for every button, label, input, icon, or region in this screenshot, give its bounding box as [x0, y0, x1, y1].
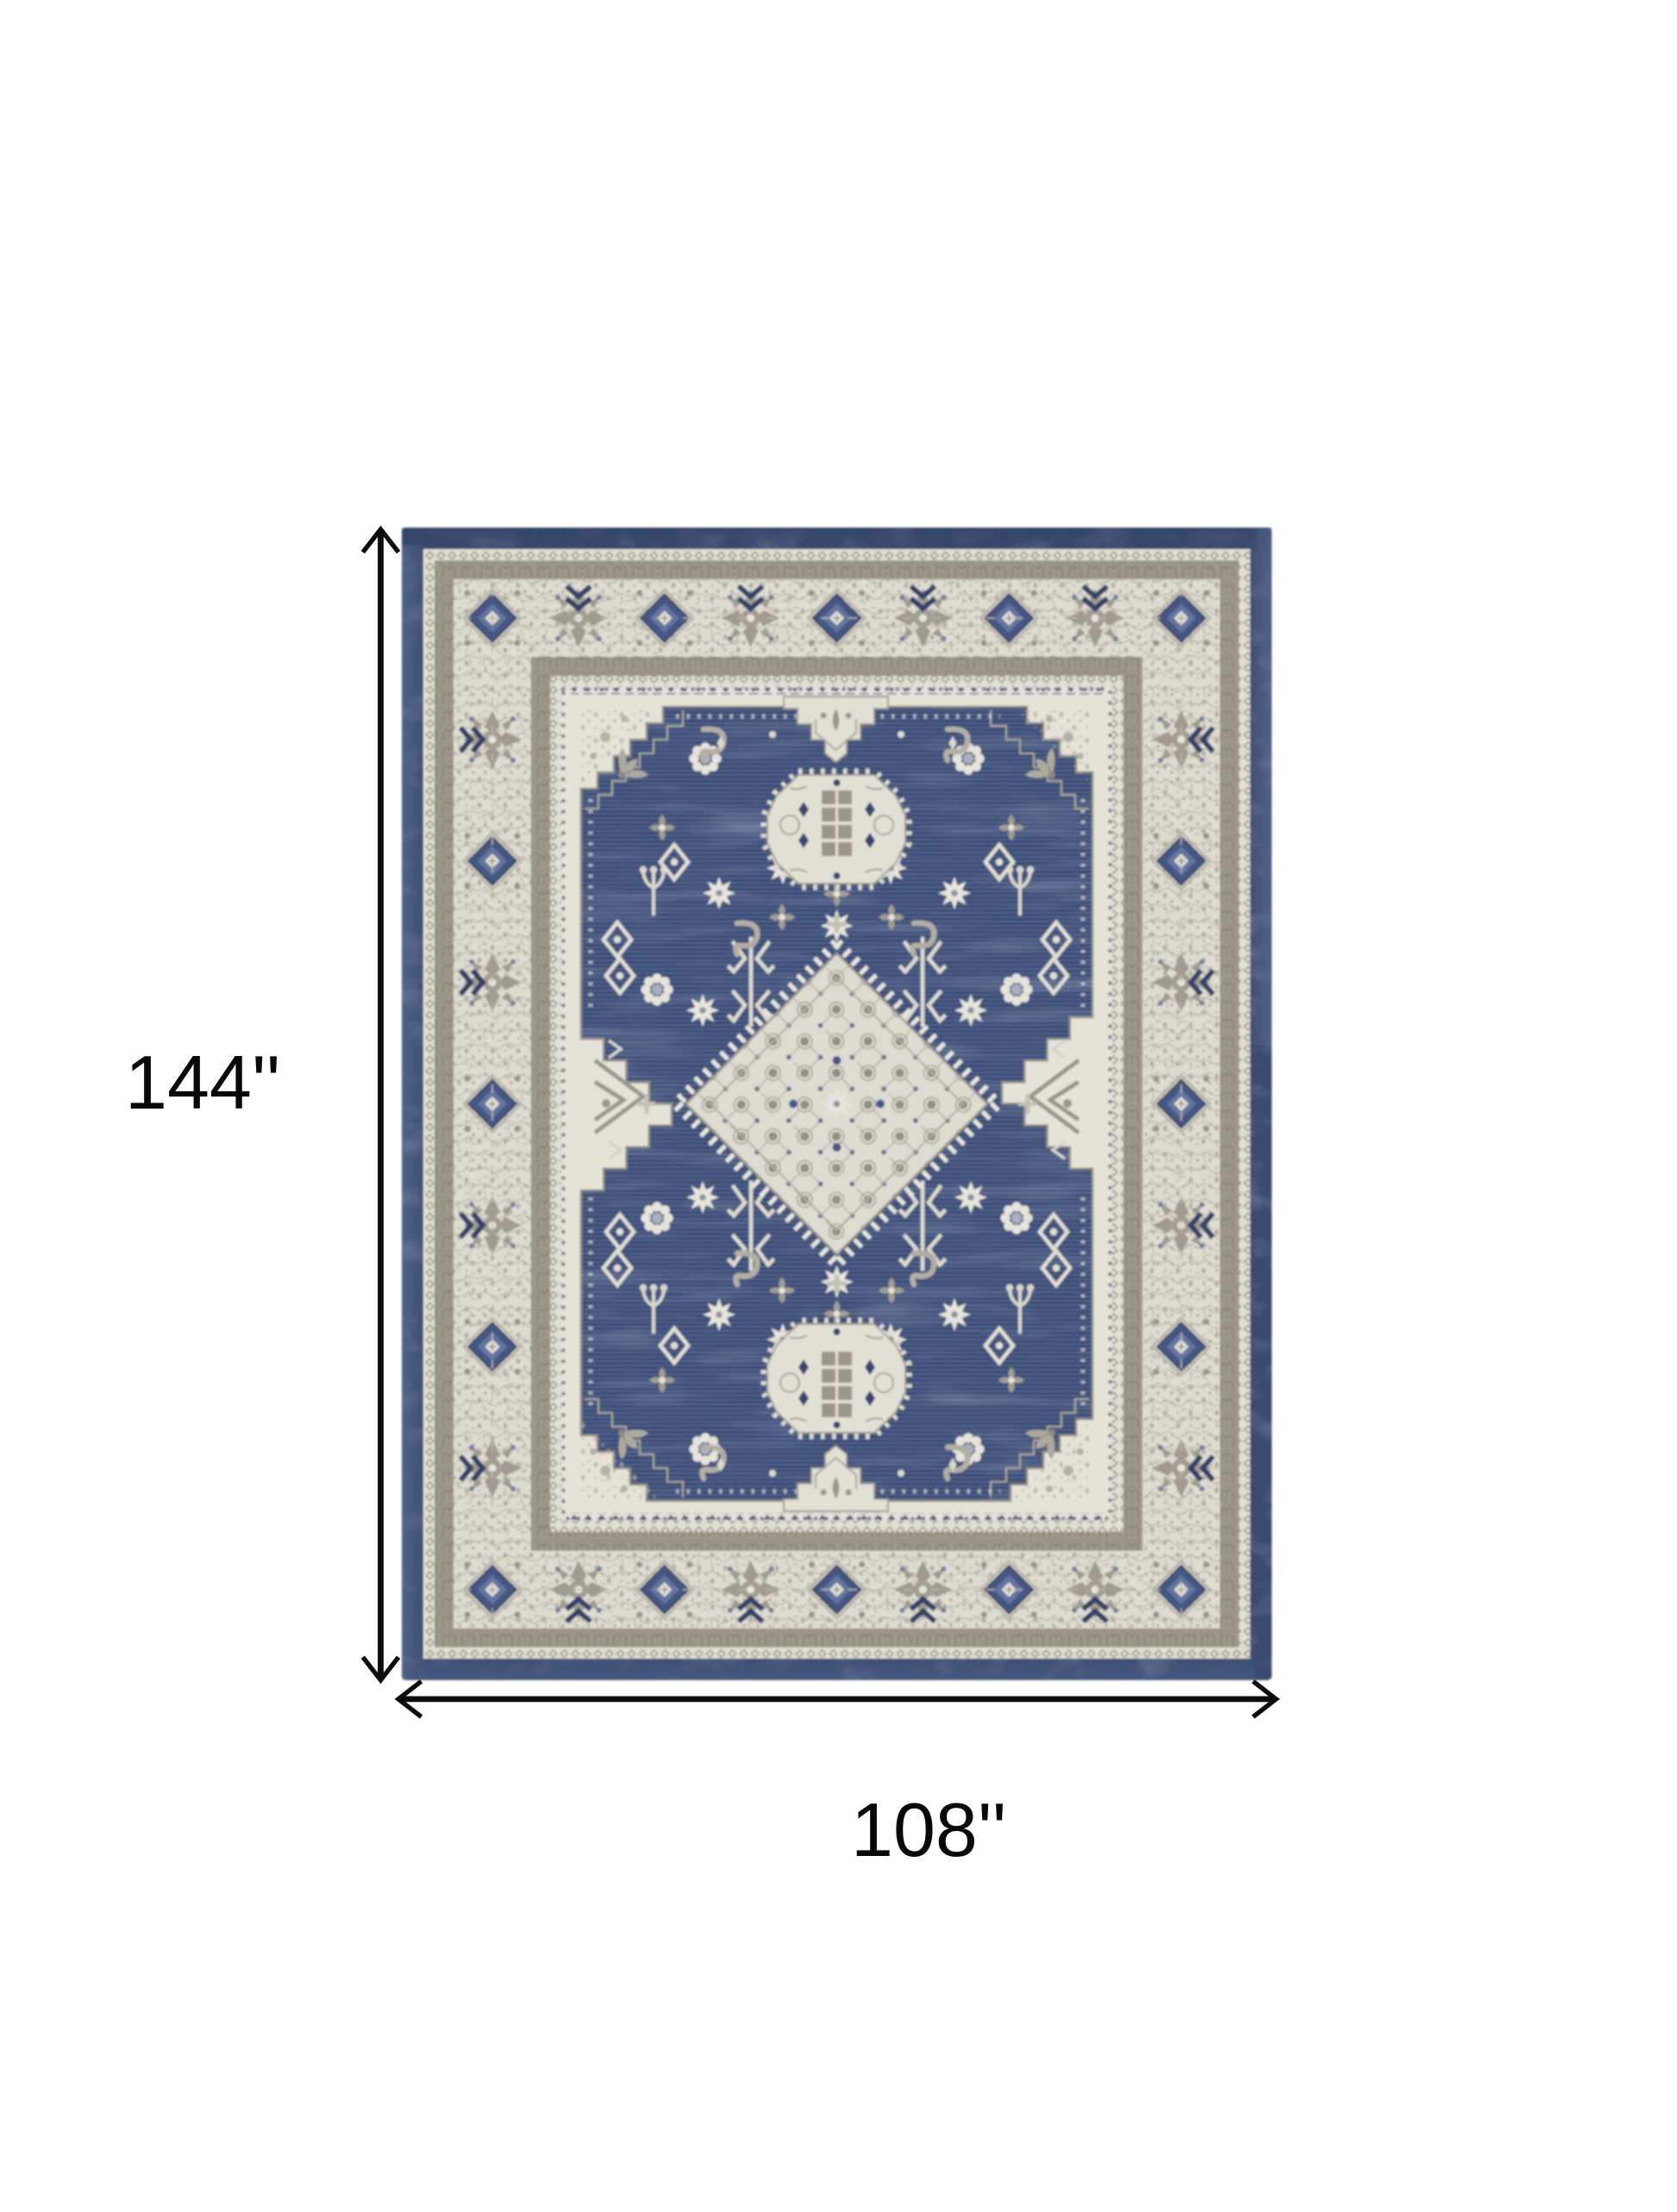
svg-text:144'': 144'' [125, 1040, 280, 1125]
svg-text:108'': 108'' [851, 1787, 1006, 1872]
